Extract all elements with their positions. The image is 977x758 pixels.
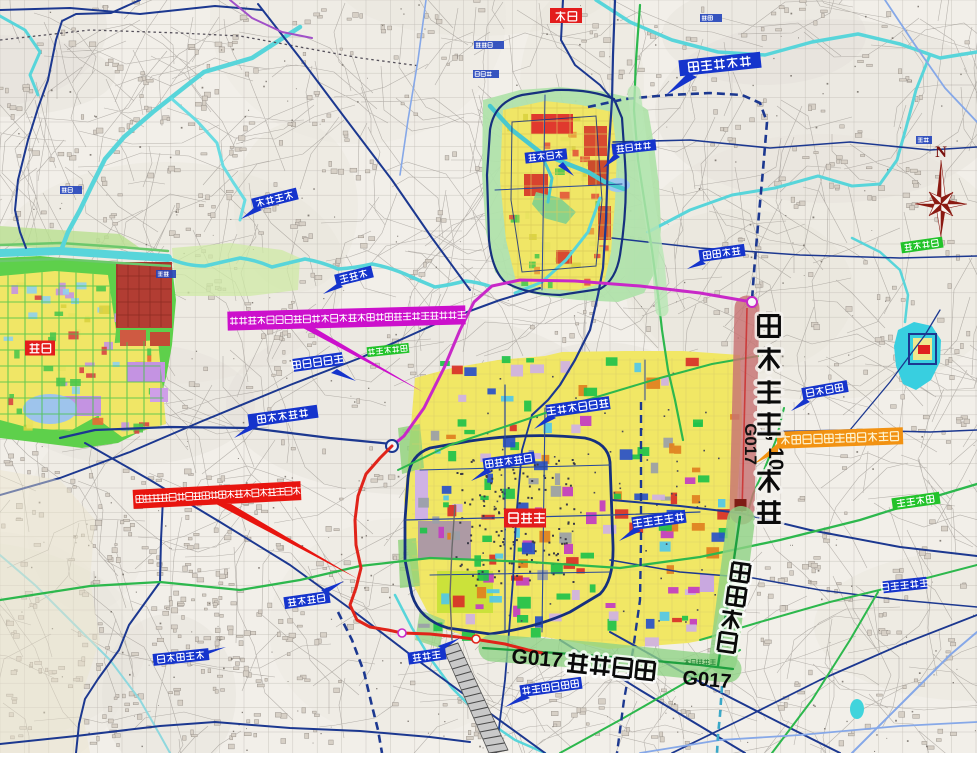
svg-text:G017: G017: [511, 645, 564, 672]
svg-text:G017: G017: [682, 667, 733, 693]
svg-text:, 10: , 10: [764, 435, 787, 470]
svg-text:N: N: [935, 144, 947, 161]
svg-text:G017: G017: [741, 423, 760, 465]
